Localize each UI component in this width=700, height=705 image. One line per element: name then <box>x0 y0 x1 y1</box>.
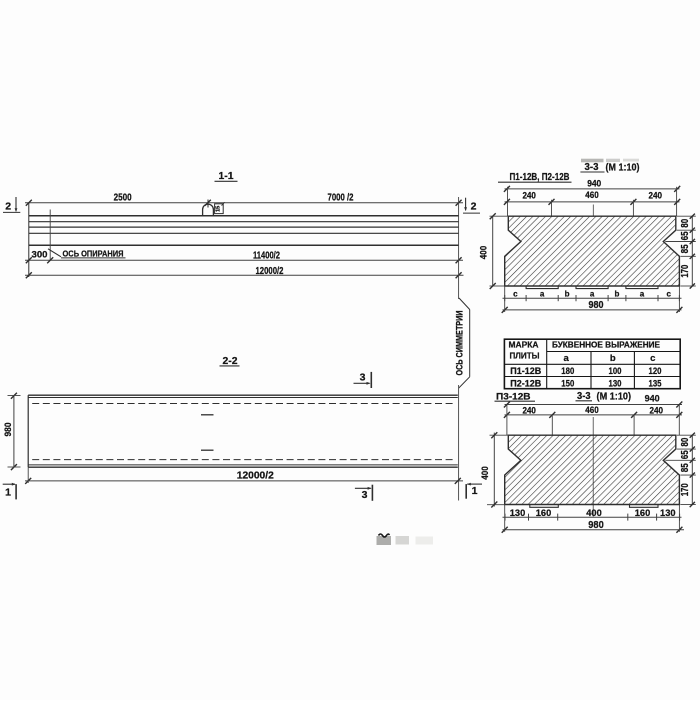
svg-text:1-1: 1-1 <box>219 171 234 182</box>
svg-text:3: 3 <box>360 372 366 384</box>
svg-text:П1-12В, П2-12В: П1-12В, П2-12В <box>510 172 570 183</box>
svg-text:b: b <box>615 290 620 299</box>
svg-text:3-3: 3-3 <box>577 391 591 402</box>
svg-text:а: а <box>590 290 595 299</box>
svg-text:а: а <box>540 290 545 299</box>
svg-text:160: 160 <box>635 508 651 519</box>
svg-text:2: 2 <box>5 200 11 212</box>
svg-text:П2-12В: П2-12В <box>510 378 541 388</box>
svg-text:65: 65 <box>680 450 691 459</box>
svg-text:130: 130 <box>609 378 622 389</box>
svg-text:240: 240 <box>522 405 536 415</box>
svg-text:ПЛИТЫ: ПЛИТЫ <box>510 350 540 360</box>
svg-text:400: 400 <box>480 466 490 480</box>
svg-text:170: 170 <box>680 483 691 496</box>
svg-text:80: 80 <box>680 437 691 446</box>
svg-text:100: 100 <box>609 366 622 377</box>
svg-text:85: 85 <box>680 463 691 472</box>
svg-text:460: 460 <box>585 190 599 200</box>
svg-text:240: 240 <box>650 405 664 415</box>
svg-text:а: а <box>564 353 570 364</box>
svg-text:940: 940 <box>645 394 660 405</box>
svg-text:12000/2: 12000/2 <box>237 470 274 482</box>
svg-text:МАРКА: МАРКА <box>509 339 540 349</box>
svg-text:85: 85 <box>680 244 691 253</box>
svg-text:11400/2: 11400/2 <box>253 250 280 261</box>
svg-text:ОСЬ ОПИРАНИЯ: ОСЬ ОПИРАНИЯ <box>63 249 124 259</box>
svg-text:(М 1:10): (М 1:10) <box>597 391 632 402</box>
svg-text:b: b <box>565 290 570 299</box>
svg-text:460: 460 <box>585 405 599 415</box>
svg-text:130: 130 <box>510 508 526 519</box>
svg-text:1: 1 <box>472 485 478 497</box>
svg-text:(М 1:10): (М 1:10) <box>606 162 640 173</box>
svg-text:2: 2 <box>471 201 477 213</box>
svg-text:400: 400 <box>586 508 602 519</box>
svg-text:1: 1 <box>5 487 11 499</box>
svg-text:130: 130 <box>660 508 676 519</box>
svg-text:12000/2: 12000/2 <box>256 266 284 277</box>
svg-text:а: а <box>640 290 645 299</box>
svg-text:2500: 2500 <box>114 191 132 203</box>
svg-text:с: с <box>650 353 655 364</box>
svg-text:980: 980 <box>588 520 604 531</box>
svg-text:65: 65 <box>680 231 691 240</box>
svg-text:160: 160 <box>536 508 552 519</box>
svg-text:с: с <box>513 290 518 299</box>
svg-text:240: 240 <box>522 190 536 200</box>
svg-text:П1-12В: П1-12В <box>510 366 541 376</box>
svg-text:300: 300 <box>32 250 48 261</box>
svg-text:940: 940 <box>587 179 601 189</box>
svg-text:120: 120 <box>649 366 662 377</box>
svg-text:180: 180 <box>561 366 574 377</box>
svg-text:980: 980 <box>2 423 13 437</box>
svg-text:240: 240 <box>649 190 663 200</box>
svg-text:80: 80 <box>680 218 691 227</box>
svg-text:400: 400 <box>478 246 488 260</box>
svg-text:с: с <box>666 290 671 299</box>
svg-text:150: 150 <box>561 378 574 389</box>
svg-text:ОСЬ СИММЕТРИИ: ОСЬ СИММЕТРИИ <box>455 310 465 375</box>
svg-text:15: 15 <box>215 206 221 212</box>
svg-text:3-3: 3-3 <box>585 162 599 173</box>
svg-text:b: b <box>610 353 616 364</box>
svg-text:БУКВЕННОЕ ВЫРАЖЕНИЕ: БУКВЕННОЕ ВЫРАЖЕНИЕ <box>552 340 660 350</box>
svg-text:7000 /2: 7000 /2 <box>328 191 354 203</box>
svg-text:170: 170 <box>680 264 691 277</box>
svg-text:135: 135 <box>649 378 663 389</box>
svg-text:3: 3 <box>362 489 368 501</box>
